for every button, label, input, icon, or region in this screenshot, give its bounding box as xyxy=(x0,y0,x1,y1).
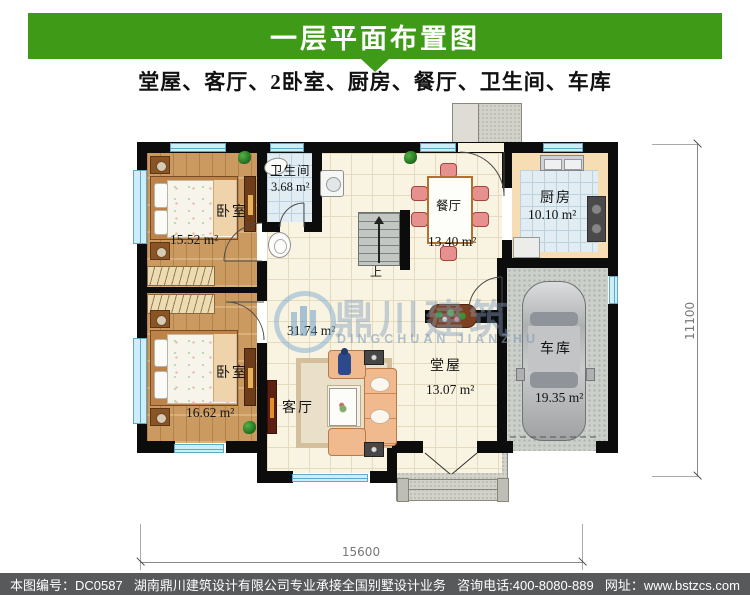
logo-bar xyxy=(291,312,297,336)
footer-company: 湖南鼎川建筑设计有限公司专业承接全国别墅设计业务 xyxy=(134,575,446,594)
dimension-line-bottom xyxy=(140,562,583,563)
room-label-bedroom1: 卧室 xyxy=(216,201,248,221)
room-label-bathroom: 卫生间 xyxy=(270,160,311,179)
room-label-living: 客厅 xyxy=(282,397,314,417)
room-area-hall: 13.07 m² xyxy=(426,382,474,398)
logo-bar xyxy=(300,306,307,336)
floor-plan: 上 xyxy=(0,0,750,595)
watermark-logo-icon xyxy=(274,291,336,353)
dimension-width: 15600 xyxy=(321,545,401,559)
floor-plan-page: { "header": { "title": "一层平面布置图", "subti… xyxy=(0,0,750,595)
entry-door-leaf xyxy=(425,453,477,474)
door-arc xyxy=(460,152,504,196)
room-area-dining: 13.40 m² xyxy=(428,234,476,250)
door-arc xyxy=(280,203,304,227)
dimension-height: 11100 xyxy=(683,280,697,340)
footer-plan-code: 本图编号：DC0587 xyxy=(10,575,123,594)
room-area-bedroom2: 16.62 m² xyxy=(186,405,234,421)
room-label-hall: 堂屋 xyxy=(430,355,462,375)
room-label-bedroom2: 卧室 xyxy=(216,362,248,382)
door-arc xyxy=(226,302,264,340)
watermark: 鼎川建筑 DINGCHUAN JIANZHU xyxy=(274,289,534,351)
extension-line xyxy=(652,144,698,145)
plant-icon xyxy=(238,151,251,164)
extension-line xyxy=(652,476,698,477)
logo-bar xyxy=(310,310,316,336)
plant-icon xyxy=(243,421,256,434)
watermark-en: DINGCHUAN JIANZHU xyxy=(337,332,539,346)
footer-bar: 本图编号：DC0587 湖南鼎川建筑设计有限公司专业承接全国别墅设计业务 咨询电… xyxy=(0,573,750,595)
dimension-line-right xyxy=(697,144,698,476)
room-label-garage: 车库 xyxy=(540,338,572,358)
room-label-dining: 餐厅 xyxy=(436,195,461,214)
plant-icon xyxy=(404,151,417,164)
stairs-up-label: 上 xyxy=(370,263,382,280)
room-area-bathroom: 3.68 m² xyxy=(271,180,309,195)
room-label-kitchen: 厨房 xyxy=(540,187,572,207)
room-area-garage: 19.35 m² xyxy=(535,390,583,406)
door-arc xyxy=(224,223,262,261)
room-area-kitchen: 10.10 m² xyxy=(528,207,576,223)
room-area-bedroom1: 15.52 m² xyxy=(170,232,218,248)
footer-website: 网址：www.bstzcs.com xyxy=(605,575,740,594)
footer-phone: 咨询电话:400-8080-889 xyxy=(457,575,594,594)
